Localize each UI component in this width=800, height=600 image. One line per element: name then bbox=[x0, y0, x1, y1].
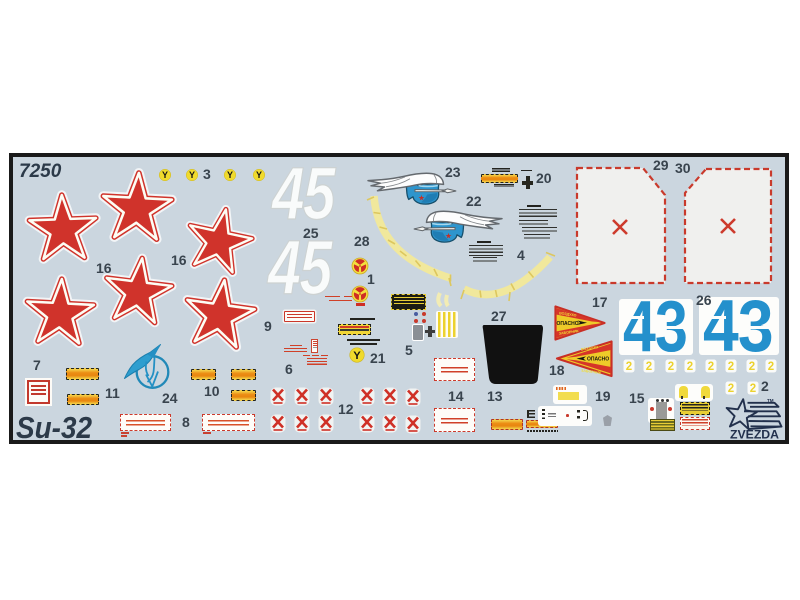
svg-text:TM: TM bbox=[767, 398, 774, 403]
svg-text:ОПАСНО: ОПАСНО bbox=[587, 357, 609, 363]
svg-text:ZVEZDA: ZVEZDA bbox=[730, 428, 779, 442]
svg-text:ОПАСНО: ОПАСНО bbox=[557, 321, 579, 327]
